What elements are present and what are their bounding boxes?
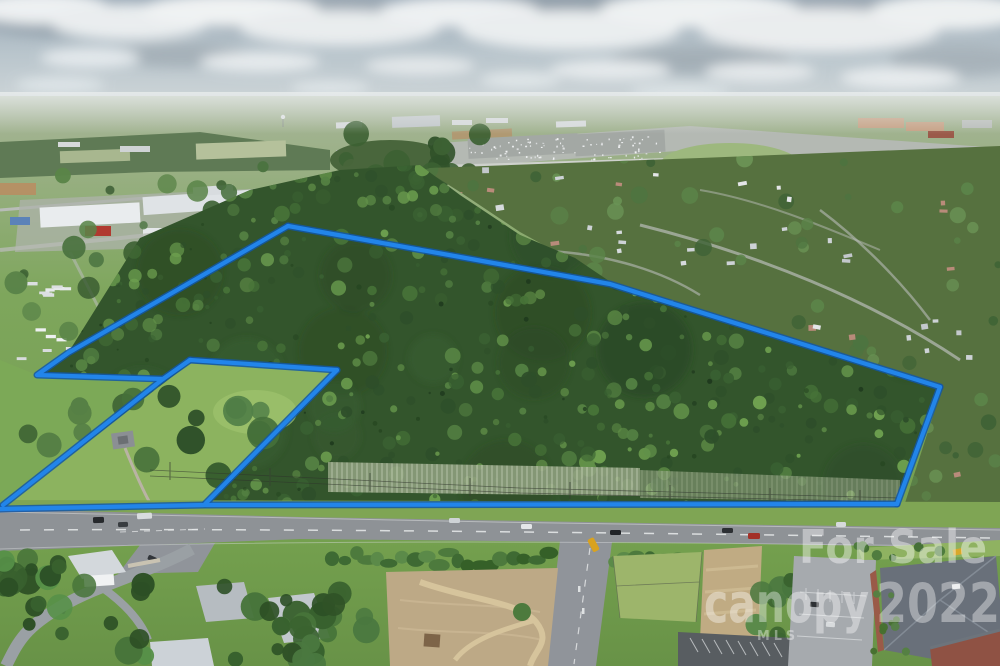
aerial-photo-for-sale: For Sale canopy MLS 2022: [0, 0, 1000, 666]
aerial-photo: For Sale canopy MLS 2022: [0, 0, 1000, 666]
canopy-watermark: canopy: [704, 572, 869, 635]
for-sale-watermark: For Sale: [799, 520, 987, 574]
mls-watermark: MLS: [757, 629, 799, 644]
young-pine-band: [328, 462, 640, 496]
year-watermark: 2022: [876, 572, 1000, 635]
pasture: [613, 552, 702, 622]
horizon-haze: [0, 92, 1000, 134]
shed: [424, 633, 441, 647]
house-roof: [150, 638, 214, 666]
